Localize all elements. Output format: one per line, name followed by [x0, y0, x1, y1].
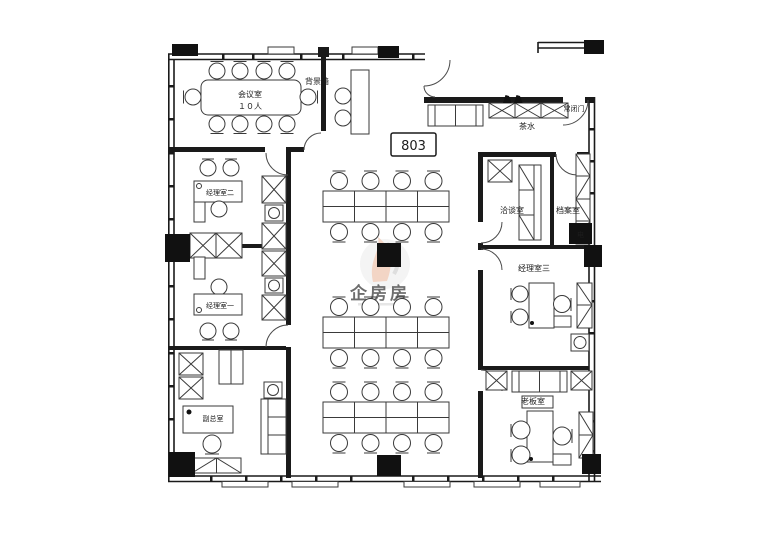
office-chair — [362, 224, 379, 241]
office-chair — [211, 201, 227, 217]
office-chair — [331, 299, 348, 316]
floor-plan-svg: 企房房 — [0, 0, 763, 540]
office-chair — [394, 299, 411, 316]
office-chair — [211, 279, 227, 295]
tea-water-label: 茶水 — [519, 121, 535, 131]
desk-return — [194, 202, 205, 222]
manager-room-3: 经理室三 — [511, 263, 592, 351]
open-office-area — [323, 171, 449, 453]
office-chair — [362, 435, 379, 452]
manager-room-2-label: 经理室二 — [206, 188, 234, 197]
office-chair — [425, 224, 442, 241]
curtain-wall-sill — [222, 482, 580, 488]
office-chair — [209, 116, 225, 132]
office-chair — [425, 435, 442, 452]
floor-plan-page: 企房房 — [0, 0, 763, 540]
office-chair — [256, 116, 272, 132]
office-chair — [425, 173, 442, 190]
negotiation-room-label: 洽谈室 — [500, 205, 524, 215]
archive-room-door-arc — [556, 154, 577, 175]
guest-chair — [200, 323, 216, 339]
office-chair — [203, 435, 221, 453]
guest-chair — [512, 446, 530, 464]
normally-closed-door-label: 常闭门 — [564, 104, 585, 113]
office-chair — [362, 350, 379, 367]
office-chair — [394, 350, 411, 367]
main-entry-door-arc — [424, 60, 450, 86]
manager-room-1: 经理室一 — [194, 251, 286, 340]
reception-chair — [335, 110, 351, 126]
desk-return — [194, 257, 205, 279]
meeting-room-door-arc — [304, 133, 321, 150]
office-chair — [331, 224, 348, 241]
office-chair — [362, 299, 379, 316]
guest-chair — [512, 286, 528, 302]
meeting-capacity-label: １０人 — [238, 102, 262, 111]
office-chair — [232, 116, 248, 132]
background-wall-label: 背景墙 — [305, 76, 329, 86]
office-chair — [425, 350, 442, 367]
boss-room: 老板室 — [486, 371, 593, 465]
workstation-cluster-1 — [323, 171, 449, 242]
meeting-room: 会议室 １０人 — [184, 62, 318, 134]
manager-room-3-label: 经理室三 — [518, 263, 550, 273]
manager-room-2-door-arc — [266, 153, 288, 175]
guest-chair — [223, 323, 239, 339]
deputy-gm-room: 副总室 — [179, 350, 286, 473]
office-chair — [331, 350, 348, 367]
office-chair — [331, 435, 348, 452]
sofa — [261, 399, 286, 454]
unit-number-box: 803 — [391, 133, 436, 156]
office-chair — [362, 384, 379, 401]
boss-room-label: 老板室 — [521, 396, 545, 406]
manager-room-1-door-arc — [266, 325, 288, 347]
desk-return — [553, 454, 571, 465]
workstation-cluster-2 — [323, 297, 449, 368]
office-chair — [209, 63, 225, 79]
guest-chair — [512, 421, 530, 439]
negotiation-room-door-arc — [481, 222, 502, 243]
office-chair — [362, 173, 379, 190]
negotiation-room: 洽谈室 — [488, 160, 541, 240]
office-chair — [425, 299, 442, 316]
office-chair — [300, 89, 316, 105]
office-chair — [232, 63, 248, 79]
office-chair — [425, 384, 442, 401]
unit-number: 803 — [401, 139, 426, 154]
office-chair — [331, 173, 348, 190]
window-break-symbol — [352, 47, 378, 54]
office-chair — [256, 63, 272, 79]
manager-room-3-door-arc — [481, 249, 502, 270]
sofa — [519, 165, 541, 240]
window-break-symbol — [268, 47, 294, 54]
office-chair — [279, 63, 295, 79]
desk-return — [554, 316, 571, 327]
main-entry-door-arc2 — [424, 86, 435, 97]
shared-cabinet — [190, 233, 242, 258]
manager-room-1-label: 经理室一 — [206, 301, 234, 310]
electric-label: 电 — [577, 230, 584, 239]
office-chair — [185, 89, 201, 105]
archive-room-label: 档案室 — [556, 205, 580, 215]
reception-chair — [335, 88, 351, 104]
office-chair — [279, 116, 295, 132]
guest-chair — [512, 309, 528, 325]
office-chair — [394, 224, 411, 241]
guest-chair — [200, 160, 216, 176]
reception-counter — [351, 70, 369, 134]
office-chair — [394, 384, 411, 401]
office-chair — [331, 384, 348, 401]
office-chair — [553, 427, 571, 445]
office-chair — [554, 296, 571, 313]
workstation-cluster-3 — [323, 382, 449, 453]
office-chair — [394, 173, 411, 190]
deputy-gm-room-label: 副总室 — [203, 414, 224, 423]
office-chair — [394, 435, 411, 452]
desk — [527, 411, 553, 462]
guest-chair — [223, 160, 239, 176]
meeting-room-label: 会议室 — [238, 89, 262, 99]
